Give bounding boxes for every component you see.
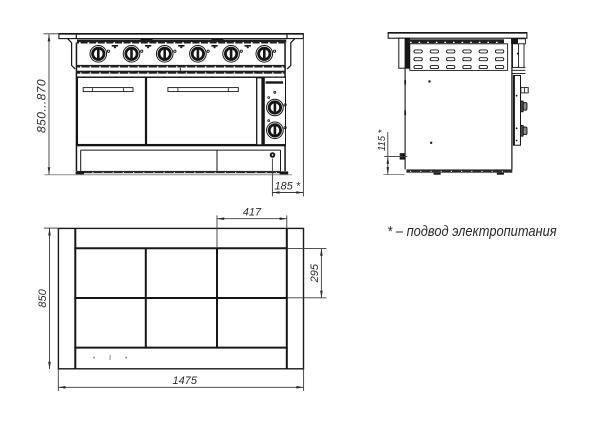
svg-text:1475: 1475 [173,375,198,387]
svg-text:295: 295 [309,263,321,283]
svg-text:850...870: 850...870 [34,79,48,133]
svg-text:185 *: 185 * [274,181,300,193]
svg-text:* – подвод электропитания: * – подвод электропитания [387,223,557,239]
svg-text:115 *: 115 * [376,129,388,151]
svg-text:850: 850 [37,288,49,307]
svg-text:417: 417 [243,206,262,218]
